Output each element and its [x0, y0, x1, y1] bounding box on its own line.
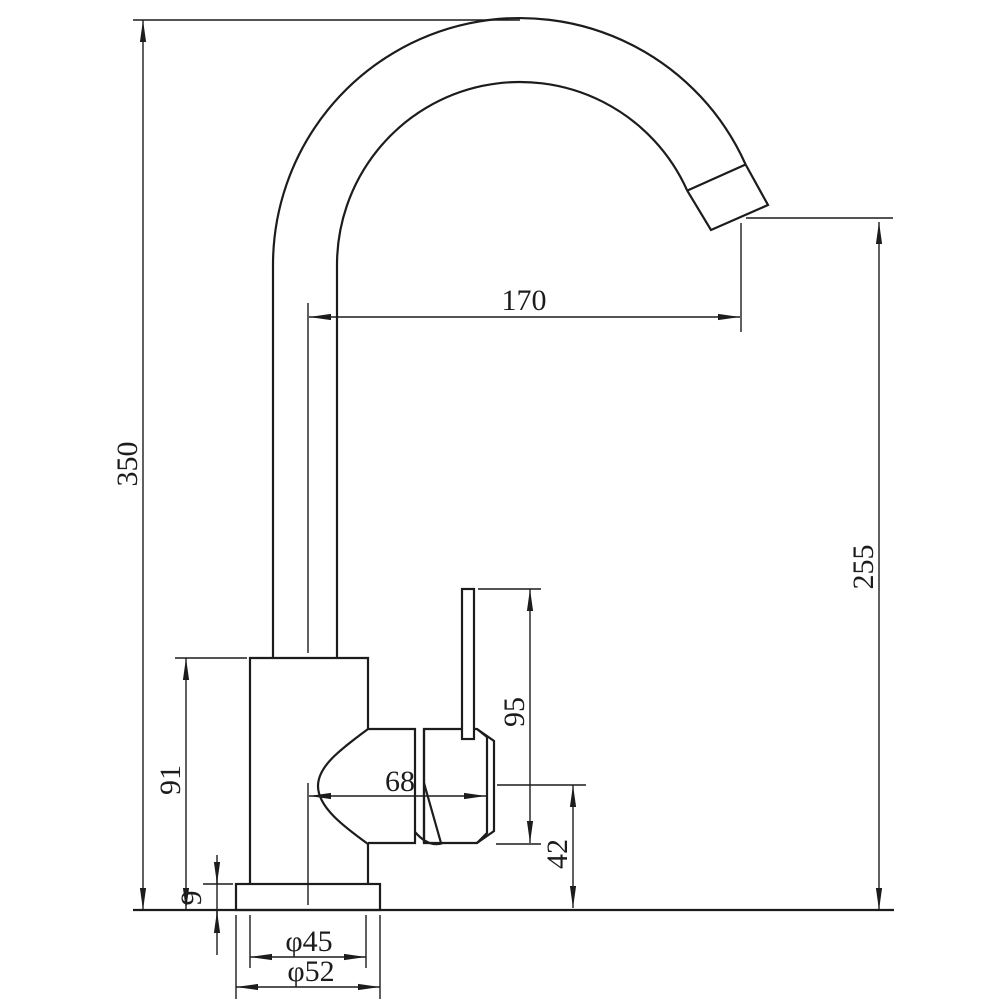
dim-label-body-height: 91	[154, 765, 187, 795]
dim-label-handle-height: 95	[498, 697, 531, 727]
dim-label-outlet-height: 255	[847, 545, 880, 590]
dim-label-plate-thickness: 9	[175, 891, 208, 906]
lever-pivot-line	[424, 783, 441, 843]
spout-inner-curve	[337, 82, 687, 658]
cartridge-dome	[318, 729, 368, 844]
handle-rod	[462, 589, 474, 739]
body-outline	[250, 658, 368, 884]
dim-label-cartridge-length: 68	[385, 765, 415, 798]
handle-hub	[424, 729, 487, 843]
aerator-band-line	[687, 165, 745, 191]
dim-label-base-diameter: φ52	[287, 955, 334, 988]
dim-label-overall-height: 350	[111, 442, 144, 487]
aerator-outline	[687, 165, 768, 231]
hub-end-cap	[477, 729, 494, 843]
faucet-technical-drawing: 350 170 255 91 9 95 68 42 φ45 φ52	[0, 0, 1000, 1000]
dim-label-body-diameter: φ45	[285, 925, 332, 958]
drawing-canvas: 350 170 255 91 9 95 68 42 φ45 φ52	[0, 0, 1000, 1000]
dim-label-cartridge-center-height: 42	[541, 839, 574, 869]
spout-outer-curve	[273, 18, 746, 658]
dim-label-spout-reach: 170	[502, 284, 547, 317]
